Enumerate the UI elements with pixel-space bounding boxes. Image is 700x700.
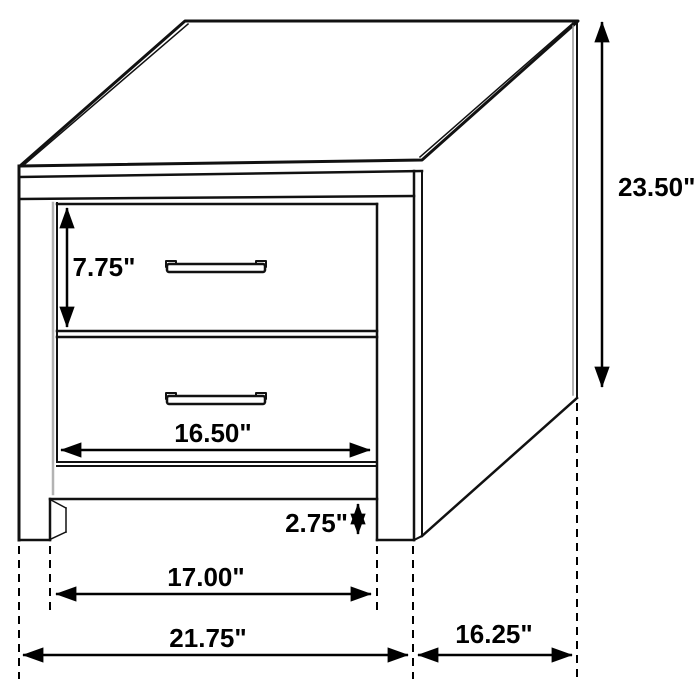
dimension-label-side-depth: 16.25" — [455, 619, 532, 649]
dimension-label-base-clearance: 2.75" — [285, 508, 348, 538]
dimension-drawer-height: 7.75" — [67, 208, 135, 327]
front-left-leg — [19, 499, 66, 540]
drawer-1-handle — [166, 261, 266, 272]
diagram-canvas: 23.50" 7.75" 16.50" 2.75" 17.00" 21.75" … — [0, 0, 700, 700]
base-rail — [50, 466, 377, 499]
dimension-between-legs: 17.00" — [56, 562, 371, 594]
dimension-label-drawer-width: 16.50" — [174, 418, 251, 448]
dimension-label-between-legs: 17.00" — [167, 562, 244, 592]
dimension-side-depth: 16.25" — [418, 619, 572, 655]
dimension-label-overall-height: 23.50" — [618, 172, 695, 202]
dimension-label-overall-width: 21.75" — [169, 623, 246, 653]
dimension-overall-height: 23.50" — [602, 22, 695, 387]
top-face — [20, 21, 578, 177]
dimension-drawer-width: 16.50" — [61, 418, 370, 450]
dimension-base-clearance: 2.75" — [285, 504, 358, 538]
dimension-label-drawer-height: 7.75" — [73, 252, 136, 282]
dimension-overall-width: 21.75" — [23, 623, 408, 655]
front-frame — [19, 166, 414, 540]
drawer-2-handle — [166, 393, 266, 404]
nightstand-dimension-diagram: 23.50" 7.75" 16.50" 2.75" 17.00" 21.75" … — [0, 0, 700, 700]
